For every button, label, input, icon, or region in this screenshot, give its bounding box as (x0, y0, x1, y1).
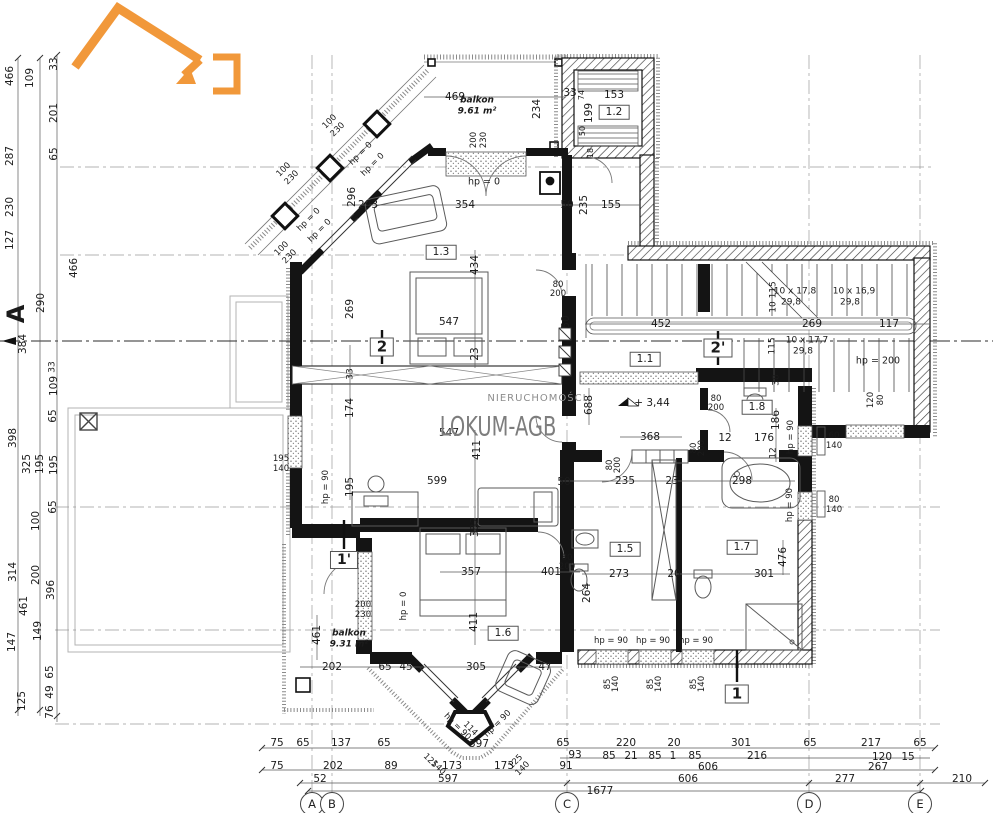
dim-label: 264 (582, 583, 593, 603)
dim-label: 75 (270, 761, 283, 772)
dim-label: 65 (48, 500, 59, 513)
grid-bubble-E: E (908, 792, 932, 813)
dim-label: 476 (778, 547, 789, 567)
dim-label: 33 (563, 88, 576, 99)
dim-label: 125 (17, 691, 28, 711)
dim-label: 23 (470, 347, 481, 360)
dim-label: 65 (378, 662, 391, 673)
dim-label: 1677 (587, 786, 614, 797)
dim-label: 117 (879, 319, 899, 330)
room-label: 1.1 (630, 352, 661, 367)
dim-label: 50 (557, 477, 570, 488)
dim-label: hp = 90 (636, 637, 670, 646)
dim-label: 396 (46, 580, 57, 600)
dim-label: 173 (442, 761, 462, 772)
room-label: 1.6 (488, 626, 519, 641)
dim-label: 140 (826, 506, 842, 515)
dim-label: 21 (624, 751, 637, 762)
dim-label: 20 (667, 569, 680, 580)
dim-label: hp = 90 (594, 637, 628, 646)
dim-label: 115 (769, 337, 778, 354)
low-wall (580, 372, 698, 384)
dim-label: 85 (648, 751, 661, 762)
dim-label: 85 (602, 751, 615, 762)
dim-label: 466 (69, 258, 80, 278)
partition-braced (292, 366, 562, 384)
dim-label: 76 (45, 705, 56, 718)
dim-label: 200 (31, 565, 42, 585)
dim-label: 80 (829, 496, 840, 505)
dim-label: 50 (579, 126, 587, 136)
dim-label: 461 (312, 625, 323, 645)
dim-label: 140 (273, 465, 289, 474)
dim-label: hp = 0 (468, 177, 500, 187)
dim-label: 149 (33, 621, 44, 641)
dim-label: 461 (19, 596, 30, 616)
dim-label: 47 (538, 662, 551, 673)
dim-label: 65 (296, 738, 309, 749)
dim-label: 200 (614, 457, 623, 473)
dim-label: 33 (49, 361, 58, 372)
dim-label: 298 (732, 476, 752, 487)
floor-plan: 46923433741531995018balkon9.61 m²200230h… (0, 0, 993, 813)
shaft-symbol (559, 328, 571, 376)
dim-label: 269 (802, 319, 822, 330)
dim-label: 354 (455, 200, 475, 211)
dim-label: 176 (754, 433, 774, 444)
dim-label: 220 (616, 738, 636, 749)
dim-label: 606 (698, 762, 718, 773)
stair-note: 29,8 (793, 348, 813, 357)
dim-label: 195 (345, 477, 356, 497)
dim-label: 230 (5, 197, 16, 217)
window (846, 425, 904, 438)
section-marker: 2 (370, 338, 394, 357)
floor-plan-svg (0, 0, 993, 813)
stair-note: 10 x 16,9 (833, 288, 876, 297)
dim-label: 210 (952, 774, 972, 785)
dim-label: 93 (568, 750, 581, 761)
dim-label: 52 (313, 774, 326, 785)
dim-label: 137 (331, 738, 351, 749)
dim-label: 287 (5, 146, 16, 166)
dim-label: 50 (561, 315, 572, 328)
dim-label: 230 (480, 132, 489, 148)
dim-label: 199 (584, 103, 595, 123)
dim-label: 65 (556, 738, 569, 749)
dim-label: 65 (377, 738, 390, 749)
dim-label: 147 (7, 632, 18, 652)
logo-roof (75, 8, 200, 67)
dim-label: 153 (604, 90, 624, 101)
dim-label: 65 (48, 409, 59, 422)
dim-label: 140 (655, 676, 664, 692)
dim-label: 109 (49, 376, 60, 396)
dim-label: 100 (31, 511, 42, 531)
window (288, 416, 302, 468)
dim-label: 597 (438, 774, 458, 785)
dim-label: 305 (466, 662, 486, 673)
room-label: 1.8 (742, 400, 773, 415)
dim-label: 606 (678, 774, 698, 785)
dim-label: hp = 200 (856, 356, 900, 366)
dim-label: 202 (323, 761, 343, 772)
dim-label: 10 115 (770, 281, 779, 313)
dim-label: 267 (868, 762, 888, 773)
dim-label: 49 (45, 685, 56, 698)
dim-label: 398 (8, 428, 19, 448)
dim-label: 60 (829, 432, 840, 441)
dim-label: 65 (803, 738, 816, 749)
brand-name: LOKUM-AGB (440, 414, 557, 441)
dim-label: 547 (439, 317, 459, 328)
room-label: 1.3 (426, 245, 457, 260)
dim-label: hp = 90 (786, 488, 795, 522)
dim-label: 195 (273, 455, 289, 464)
dim-label: 173 (494, 761, 514, 772)
dim-label: 357 (461, 567, 481, 578)
balcony-area: 9.61 m² (458, 108, 497, 117)
dim-label: hp = 90 (787, 420, 796, 454)
dim-label: 23 (665, 476, 678, 487)
dim-label: 12 (770, 447, 779, 458)
brand-subtitle: NIERUCHOMOŚCI (487, 394, 586, 404)
dim-label: 452 (651, 319, 671, 330)
washbasin (572, 530, 598, 548)
dim-label: 230 (355, 611, 371, 620)
balcony-label: balkon (460, 97, 494, 106)
dim-label: 273 (609, 569, 629, 580)
terrace (68, 296, 290, 652)
section-marker: 1' (330, 551, 358, 569)
shower (746, 604, 802, 650)
window (798, 426, 812, 456)
dim-label: hp = 0 (400, 592, 409, 621)
dim-label: 269 (345, 299, 356, 319)
stair-note: 29,8 (840, 299, 860, 308)
section-axis (0, 337, 993, 345)
dim-label: 217 (861, 738, 881, 749)
dim-label: 50 (560, 200, 573, 211)
dim-label: 1 (670, 751, 677, 762)
dim-label: 296 (347, 187, 358, 207)
section-marker: 2' (703, 339, 732, 358)
dim-label: 234 (532, 99, 543, 119)
dim-label: 200 (355, 601, 371, 610)
dim-label: 290 (36, 293, 47, 313)
threshold (446, 152, 526, 176)
balcony-area: 9.31 m² (330, 641, 369, 650)
dim-label: 75 (270, 738, 283, 749)
dim-label: 45 (399, 662, 412, 673)
room-label: 1.7 (727, 540, 758, 555)
dim-label: 382 (470, 517, 481, 537)
radiator (817, 427, 825, 517)
dim-label: 202 (322, 662, 342, 673)
logo-bracket (213, 57, 237, 91)
dim-label: 85 (688, 751, 701, 762)
dim-label: 368 (640, 432, 660, 443)
dim-label: 599 (427, 476, 447, 487)
dim-label: 80 (877, 395, 886, 406)
dim-label: 277 (835, 774, 855, 785)
stair-note: 10 x 17,8 (774, 288, 817, 297)
dim-label: 200 (698, 440, 707, 456)
dim-label: 18 (587, 148, 595, 158)
dim-label: 411 (472, 440, 483, 460)
dim-label: 216 (747, 751, 767, 762)
brand-logo (0, 0, 260, 110)
dim-label: hp = 90 (679, 637, 713, 646)
dim-label: 200 (559, 563, 575, 572)
section-marker: 1 (725, 685, 749, 704)
dim-label: 140 (698, 676, 707, 692)
dim-label: 200 (550, 290, 566, 299)
balcony-label: balkon (332, 630, 366, 639)
dim-label: 91 (559, 761, 572, 772)
window (639, 650, 671, 664)
dim-label: 314 (8, 562, 19, 582)
furniture (352, 184, 802, 707)
dim-label: 235 (615, 476, 635, 487)
window (682, 650, 714, 664)
dim-label: hp = 90 (322, 470, 331, 504)
dim-label: 174 (345, 398, 356, 418)
stair-note: 10 x 17,7 (786, 337, 829, 346)
dim-label: 155 (601, 200, 621, 211)
dim-label: 411 (469, 612, 480, 632)
grid-bubble-C: C (555, 792, 579, 813)
dim-label: 20 (667, 738, 680, 749)
grid-bubble-B: B (320, 792, 344, 813)
dim-label: 140 (612, 676, 621, 692)
dim-label: 200 (470, 132, 479, 148)
dim-label: 89 (384, 761, 397, 772)
dim-label: 12 (718, 433, 731, 444)
room-label: 1.2 (599, 105, 630, 120)
dim-label: 397 (469, 739, 489, 750)
level-mark: + 3,44 (634, 398, 670, 409)
dim-label: 33 (347, 368, 356, 379)
dim-label: 140 (826, 442, 842, 451)
dim-label: 384 (18, 334, 29, 354)
dim-label: 301 (731, 738, 751, 749)
dim-label: 65 (49, 147, 60, 160)
room-label: 1.5 (610, 542, 641, 557)
dim-label: 235 (579, 195, 590, 215)
dim-label: 127 (5, 230, 16, 250)
dim-label: 195 (35, 454, 46, 474)
grid-bubble-D: D (797, 792, 821, 813)
dim-label: 301 (754, 569, 774, 580)
dim-label: 195 (49, 455, 60, 475)
dim-label: 293 (358, 200, 378, 211)
dim-label: 200 (708, 404, 724, 413)
dim-label: 38 (773, 374, 782, 385)
dim-label: 74 (578, 90, 586, 100)
window (596, 650, 628, 664)
dim-label: 434 (470, 255, 481, 275)
dim-label: 15 (901, 752, 914, 763)
dim-label: 120 (867, 392, 876, 408)
dim-label: 325 (22, 454, 33, 474)
dim-label: 65 (45, 665, 56, 678)
boiler (540, 172, 560, 194)
window (358, 552, 372, 640)
stair-note: 29,8 (781, 299, 801, 308)
dim-label: 65 (913, 738, 926, 749)
axis-label: A (4, 305, 28, 324)
